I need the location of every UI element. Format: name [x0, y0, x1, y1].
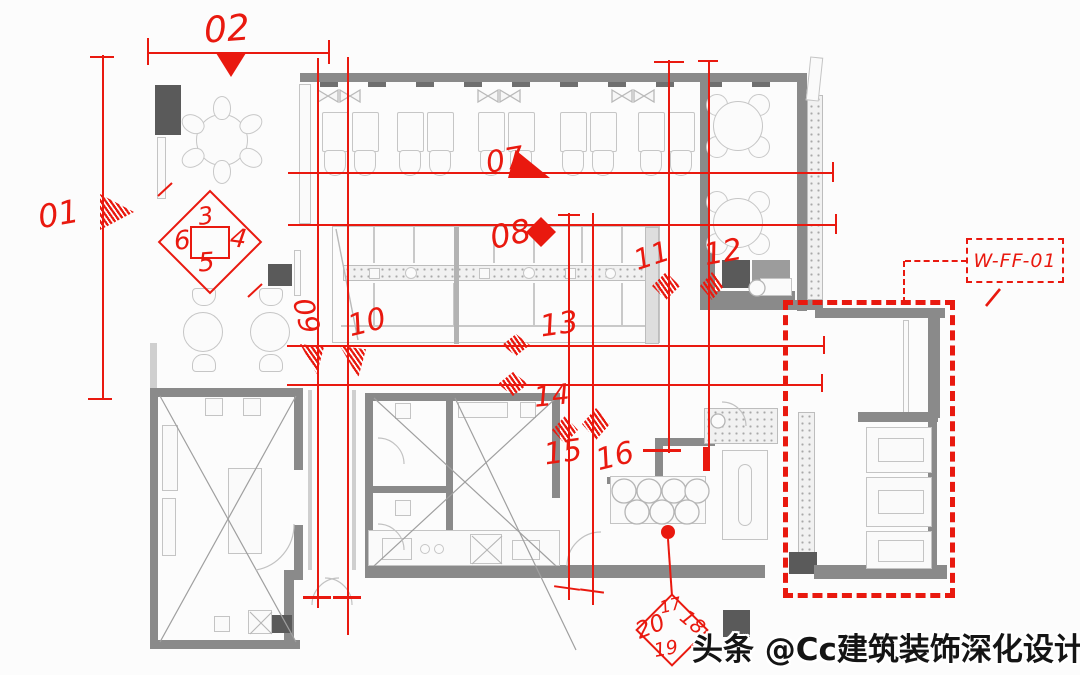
watermark: 头条 @Cc建筑装饰深化设计 [692, 624, 1080, 669]
grid-line [317, 58, 319, 608]
round-table [250, 312, 290, 352]
column [155, 85, 181, 135]
grid-line [288, 172, 833, 174]
dim-tick [698, 60, 718, 62]
service-station-inner [738, 464, 752, 526]
annotation-12: 12 [702, 235, 745, 271]
grid-line [287, 345, 825, 347]
annotation-01: 01 [36, 195, 82, 234]
corridor-wall [308, 390, 312, 570]
wall-mullion [656, 82, 674, 87]
annotation-07: 07 [484, 143, 527, 179]
dim-tick [554, 585, 580, 591]
kitchen-sink [512, 540, 540, 560]
dim-tick [303, 596, 331, 599]
kitchen-counter [162, 425, 178, 491]
section-marker-n-bottom: 19 [653, 638, 680, 661]
grid-line [288, 224, 836, 226]
wall-mullion [464, 82, 482, 87]
wall-mullion [608, 82, 626, 87]
wall-kitchen-right [294, 388, 303, 470]
table [590, 112, 617, 152]
kitchen-sink [214, 616, 230, 632]
dim-tick [328, 40, 330, 64]
wall-window [294, 250, 301, 296]
table [560, 112, 587, 152]
wall-wc-top [365, 393, 560, 401]
annotation-14: 14 [533, 380, 571, 412]
section-marker-n-top: 3 [196, 203, 214, 229]
booth-spine [343, 265, 649, 281]
kitchen-sink [205, 398, 223, 416]
table [322, 112, 349, 152]
wall-mullion [752, 82, 770, 87]
section-marker-n-bottom: 5 [197, 249, 215, 276]
wall-mullion [368, 82, 386, 87]
annotation-09: 09 [288, 295, 324, 336]
arrow [582, 408, 610, 440]
round-table [183, 312, 223, 352]
dim-tick [88, 398, 112, 400]
wall-kitchen-top [150, 388, 302, 397]
dim-tick [835, 214, 837, 234]
wc-sink [520, 402, 536, 418]
dim-tick [654, 61, 684, 63]
keg-counter [610, 476, 706, 524]
arrow [100, 194, 134, 230]
wall-kitchen-left [150, 388, 158, 648]
detail-leader [905, 260, 967, 262]
annotation-08: 08 [487, 214, 533, 254]
section-marker-n-left: 6 [173, 227, 192, 255]
chair [259, 288, 283, 306]
dim-tick [558, 214, 580, 216]
wall-mullion [560, 82, 578, 87]
wall-top [300, 73, 800, 82]
back-counter [704, 408, 778, 444]
counter-sink [760, 278, 792, 296]
annotation-11: 11 [631, 237, 674, 275]
wall-wc-divider [368, 486, 446, 493]
burner [434, 544, 444, 554]
wc-sink [395, 500, 411, 516]
wall-mullion [416, 82, 434, 87]
kitchen-stove [470, 534, 502, 564]
dim-end-mark [703, 447, 710, 471]
table [638, 112, 665, 152]
grid-line [592, 213, 594, 605]
annotation-02: 02 [203, 10, 251, 49]
floor-plan: 01 02 07 08 09 10 11 12 13 14 15 16 3 6 … [0, 0, 1080, 675]
kitchen-stove [248, 610, 272, 634]
kitchen-counter [162, 498, 176, 556]
wall-window [157, 137, 166, 199]
kitchen-sink [382, 538, 412, 560]
wall-textured-right [807, 95, 823, 300]
burner [420, 544, 430, 554]
round-table [713, 101, 763, 151]
section-marker-n-top: 17 [658, 596, 683, 618]
wall-window [299, 84, 311, 224]
kitchen-island [228, 468, 262, 554]
annotation-13: 13 [538, 307, 580, 342]
table [427, 112, 454, 152]
detail-tag-label: W-FF-01 [973, 250, 1056, 272]
arrow [216, 53, 246, 77]
column [268, 264, 292, 286]
annotation-15: 15 [542, 435, 584, 470]
detail-tag: W-FF-01 [966, 238, 1064, 283]
corridor-wall [352, 390, 356, 570]
annotation-16: 16 [593, 438, 637, 476]
detail-leader [903, 261, 905, 303]
table [352, 112, 379, 152]
wall-kitchen-bottom [150, 640, 300, 649]
dim-tick [333, 596, 361, 599]
wall-right-outer [797, 73, 807, 311]
arrow [300, 344, 324, 374]
wall-mullion [320, 82, 338, 87]
wall-kitchen-right [294, 525, 303, 580]
counter [458, 402, 508, 418]
wall-mullion [512, 82, 530, 87]
dim-tick [90, 56, 114, 58]
table [668, 112, 695, 152]
wc-sink [395, 403, 411, 419]
annotation-10: 10 [345, 304, 389, 342]
dim-tick [821, 374, 823, 392]
arrow [340, 346, 366, 378]
chair [259, 354, 283, 372]
wall-window [150, 343, 157, 390]
column [272, 615, 292, 633]
dim-tick [823, 336, 825, 354]
wall-bottom-main [365, 565, 765, 578]
dim-tick [643, 449, 681, 452]
chair [213, 96, 231, 120]
table [397, 112, 424, 152]
dim-tick [147, 38, 149, 65]
chair [192, 354, 216, 372]
kitchen-sink [243, 398, 261, 416]
chair [213, 160, 231, 184]
dim-tick [832, 162, 834, 182]
